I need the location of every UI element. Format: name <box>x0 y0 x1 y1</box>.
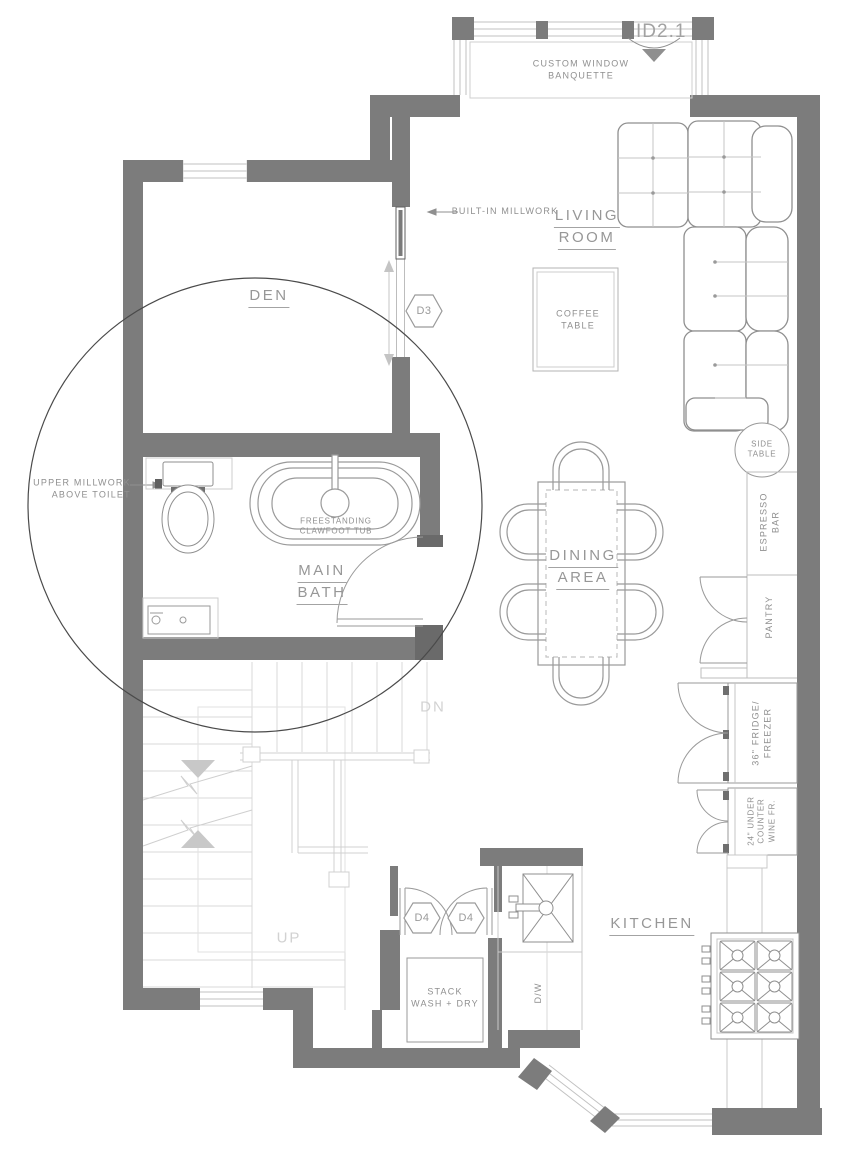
fridge <box>678 683 797 783</box>
label-built-in-millwork: BUILT-IN MILLWORK <box>452 206 559 218</box>
kitchen-sink <box>509 874 573 942</box>
label-custom-window-banquette: CUSTOM WINDOW BANQUETTE <box>533 58 629 81</box>
stair-up-arrow-icon <box>181 830 215 848</box>
espresso-pantry-cabinet <box>701 472 797 678</box>
bath-door <box>337 537 423 626</box>
label-coffee-table: COFFEE TABLE <box>556 308 600 331</box>
label-pantry: PANTRY <box>764 596 776 639</box>
room-label-den: DEN <box>248 286 289 308</box>
door-tag-d4-left: D4 <box>414 911 429 925</box>
bath-vanity <box>143 598 218 638</box>
slide-arrow-up-icon <box>384 260 394 272</box>
pocket-door <box>384 207 405 366</box>
detail-circle <box>28 278 482 732</box>
room-label-main-bath: MAIN BATH <box>297 561 348 605</box>
label-upper-millwork: UPPER MILLWORK ABOVE TOILET <box>33 477 131 500</box>
label-stairs-dn: DN <box>420 697 446 717</box>
tub-drain-icon <box>321 489 349 517</box>
section-marker-icon <box>642 49 666 62</box>
door-tags <box>404 295 484 933</box>
range <box>702 933 799 1039</box>
door-tag-d3: D3 <box>416 304 431 318</box>
floor-plan: ID2.1 CUSTOM WINDOW BANQUETTE BUILT-IN M… <box>0 0 843 1155</box>
label-wine-fridge: 24" UNDER COUNTER WINE FR. <box>746 796 777 846</box>
room-label-dining-area: DINING AREA <box>548 546 618 590</box>
label-dishwasher: D/W <box>533 982 545 1003</box>
pantry-doors <box>700 577 747 663</box>
toilet <box>146 458 232 553</box>
range-knobs <box>702 946 710 1024</box>
label-fridge-freezer: 36" FRIDGE/ FREEZER <box>750 700 773 765</box>
label-side-table: SIDE TABLE <box>748 440 777 461</box>
stair-down-arrow-icon <box>181 760 215 778</box>
sectional-sofa <box>618 121 792 431</box>
label-stairs-up: UP <box>277 928 302 948</box>
room-label-kitchen: KITCHEN <box>609 914 694 936</box>
door-tag-d4-right: D4 <box>458 911 473 925</box>
label-espresso-bar: ESPRESSO BAR <box>758 492 781 551</box>
label-stack-washer-dryer: STACK WASH + DRY <box>411 986 479 1009</box>
sheet-reference-tag: ID2.1 <box>636 20 686 45</box>
floor-plan-drawing <box>0 0 843 1155</box>
label-clawfoot-tub: FREESTANDING CLAWFOOT TUB <box>300 517 373 538</box>
room-label-living-room: LIVING ROOM <box>554 206 620 250</box>
